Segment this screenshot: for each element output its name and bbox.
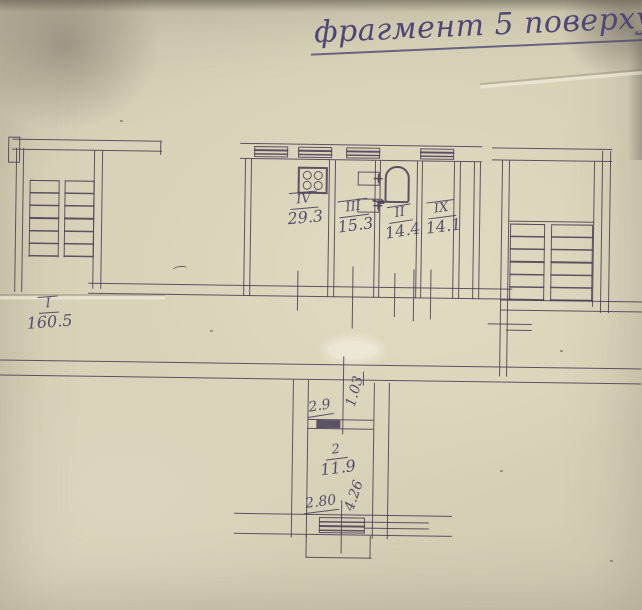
door-opening-tick [506,330,532,332]
wall-right-stairwell-rightouter [600,151,611,313]
door-opening-tick [488,323,532,326]
door-opening-tick [297,271,300,311]
wall-corridor-top [88,283,512,300]
window-icon [319,517,365,534]
scanned-floor-plan-page: фрагмент 5 поверху [0,0,642,610]
room-label-2: 2 11.9 [312,437,362,479]
burner-dot [314,171,323,180]
dimension-vestibule-width: 2.9 [305,396,334,418]
stairs-icon [550,224,593,302]
wall-left-stairwell-top [12,139,162,152]
room-area: 160.5 [18,311,81,332]
wall-building-left [14,148,24,292]
wall-left-stairwell-top-end [160,142,162,155]
window-icon [420,148,454,159]
dimension-balcony-depth: 4.26 [342,478,367,513]
wall-corridor-bottom [0,360,641,385]
wall-right-stairwell-left [499,161,510,377]
stray-pencil-mark [172,265,188,274]
room-label-ix: IX 14.1 [419,196,465,237]
stairs-icon [509,224,545,301]
wall-shaft-right [472,162,481,299]
window-icon [346,147,380,158]
window-icon [298,147,332,158]
room-label-corridor: I 160.5 [17,292,81,333]
room-label-ii: II 14.4 [378,200,425,242]
balcony-outline-bottom [305,557,371,560]
door-opening-tick [430,270,433,320]
wall-central-left [243,159,252,296]
balcony-outline-right [369,536,371,559]
door-opening-tick [394,273,397,317]
window-icon [254,146,288,157]
stairs-icon [29,180,60,257]
room-label-iv: IV 29.3 [274,187,335,228]
balcony-outline-left [305,535,307,558]
room-area: 11.9 [314,457,362,479]
room-label-iii: III 15.3 [329,195,379,237]
room-area: 29.3 [276,207,335,229]
sink-tap-mark [374,174,383,183]
door-opening-tick [413,269,416,321]
dimension-balcony-width: 2.80 [302,492,339,514]
burner-dot [303,171,312,180]
room-area: 15.3 [332,214,380,236]
wall-right-stairwell-top [492,147,612,162]
bathtub-icon [384,166,410,203]
wall-fill-segment [316,420,340,428]
wall-right-stairwell-bottom [500,300,642,313]
floor-plan-drawing: I 160.5 IV 29.3 III 15.3 II 14.4 IX 14.1… [0,0,642,610]
stairs-icon [64,180,95,257]
